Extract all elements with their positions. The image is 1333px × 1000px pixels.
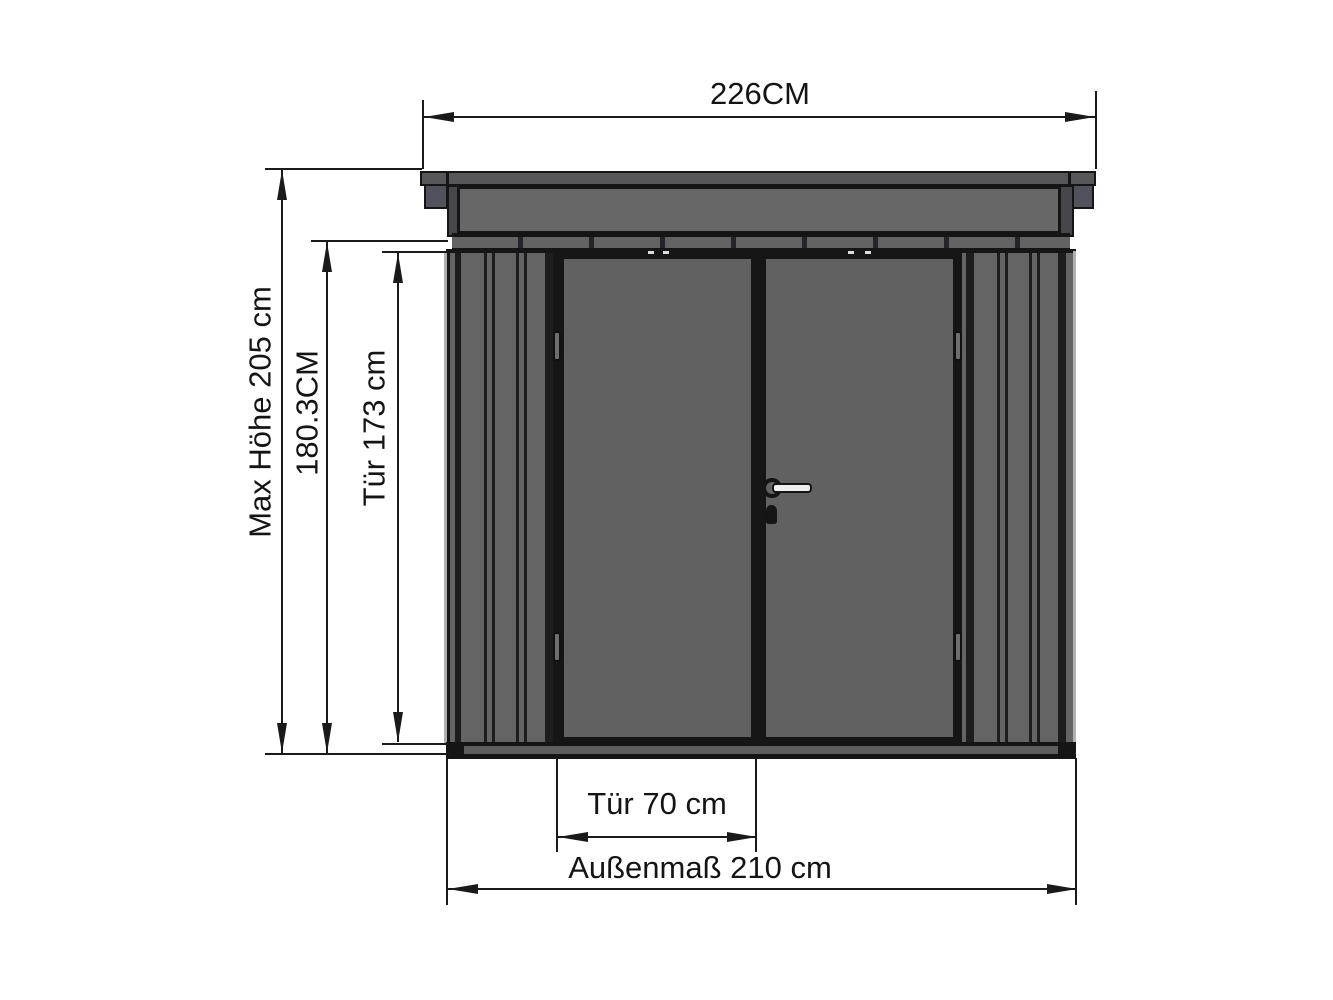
base-sill — [446, 742, 1076, 758]
arrowhead-up-icon — [322, 242, 332, 272]
extension-line — [1075, 758, 1077, 905]
door-top-clip — [865, 251, 871, 254]
door-handle-icon — [772, 483, 812, 493]
hinge-icon — [954, 331, 962, 361]
arrowhead-right-icon — [1065, 112, 1095, 122]
extension-line — [382, 743, 448, 745]
dimension-line-wall-height — [326, 242, 328, 753]
extension-line — [422, 100, 424, 169]
extension-line — [1095, 91, 1097, 169]
door-top-clip — [663, 251, 669, 254]
door-top-clip — [848, 251, 854, 254]
shed-dimension-diagram: 226CM Max Höhe 205 cm 180.3CM Tür 173 cm… — [0, 0, 1333, 1000]
roof-side-trim-right — [1059, 185, 1074, 237]
dim-label-roof-width: 226CM — [610, 78, 910, 111]
extension-line — [446, 758, 448, 905]
hinge-icon — [553, 331, 561, 361]
dim-label-door-height: Tür 173 cm — [359, 350, 392, 507]
roof-top-bar — [420, 171, 1096, 186]
arrowhead-left-icon — [424, 112, 454, 122]
base-foot-right — [1058, 742, 1076, 758]
base-foot-left — [446, 742, 464, 758]
arrowhead-right-icon — [1047, 884, 1077, 894]
dim-label-door-width: Tür 70 cm — [557, 788, 757, 821]
keyhole-icon — [766, 505, 777, 524]
dimension-line-roof-width — [424, 116, 1095, 118]
roof-fascia-panel — [457, 186, 1061, 234]
door-right — [763, 256, 956, 740]
arrowhead-left-icon — [448, 884, 478, 894]
dimension-line-door-height — [397, 253, 399, 742]
dimension-line-max-height — [281, 170, 283, 753]
dim-label-outer-width: Außenmaß 210 cm — [520, 852, 880, 885]
roof-end-cap-left — [424, 184, 448, 209]
hinge-icon — [553, 632, 561, 662]
hinge-icon — [954, 632, 962, 662]
arrowhead-right-icon — [727, 832, 757, 842]
corrugated-wall-right — [957, 253, 1073, 742]
arrowhead-left-icon — [558, 832, 588, 842]
corrugated-wall-left — [450, 253, 556, 742]
dim-label-wall-height: 180.3CM — [292, 350, 325, 476]
door-left — [561, 256, 754, 740]
door-top-clip — [648, 251, 654, 254]
dimension-line-outer-width — [448, 888, 1077, 890]
extension-line — [382, 251, 448, 253]
right-corner-highlight — [1073, 251, 1076, 743]
extension-line — [265, 168, 422, 170]
arrowhead-down-icon — [322, 723, 332, 753]
left-corner-highlight — [444, 251, 447, 743]
arrowhead-up-icon — [393, 253, 403, 283]
arrowhead-up-icon — [277, 170, 287, 200]
arrowhead-down-icon — [393, 712, 403, 742]
arrowhead-down-icon — [277, 723, 287, 753]
extension-line — [265, 753, 450, 755]
dim-label-max-height: Max Höhe 205 cm — [245, 286, 278, 538]
